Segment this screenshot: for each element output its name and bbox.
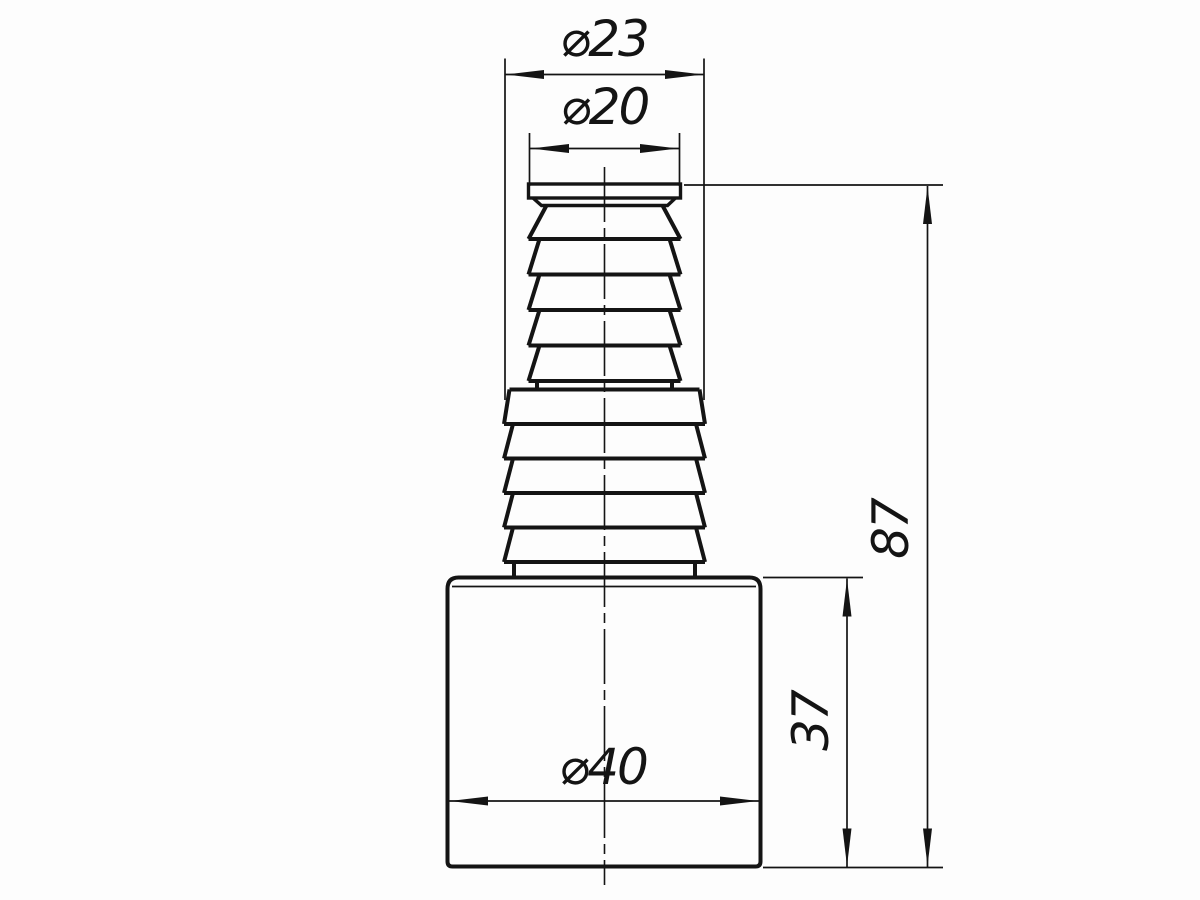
h37-arrow-top [843, 579, 852, 617]
h37-label: 37 [782, 689, 840, 751]
dimension-h87: 87 [684, 185, 943, 868]
dia23-label: ⌀23 [560, 10, 648, 68]
h87-arrow-top [923, 187, 932, 225]
dia23-arrow-right [665, 70, 703, 79]
dimension-dia40: ⌀40 [450, 738, 759, 806]
dia20-label: ⌀20 [561, 78, 649, 136]
dia40-label: ⌀40 [559, 738, 647, 796]
h87-arrow-bottom [923, 829, 932, 867]
dia20-arrow-right [640, 144, 678, 153]
dia40-arrow-left [450, 797, 488, 806]
dia23-arrow-left [506, 70, 544, 79]
technical-drawing-canvas: ⌀23 ⌀20 ⌀40 87 [0, 0, 1200, 900]
h37-arrow-bottom [843, 829, 852, 867]
dia20-arrow-left [531, 144, 569, 153]
h87-label: 87 [862, 497, 920, 559]
dia40-arrow-right [720, 797, 758, 806]
drawing-sheet: ⌀23 ⌀20 ⌀40 87 [0, 0, 1200, 900]
dimension-h37: 37 [763, 578, 863, 868]
